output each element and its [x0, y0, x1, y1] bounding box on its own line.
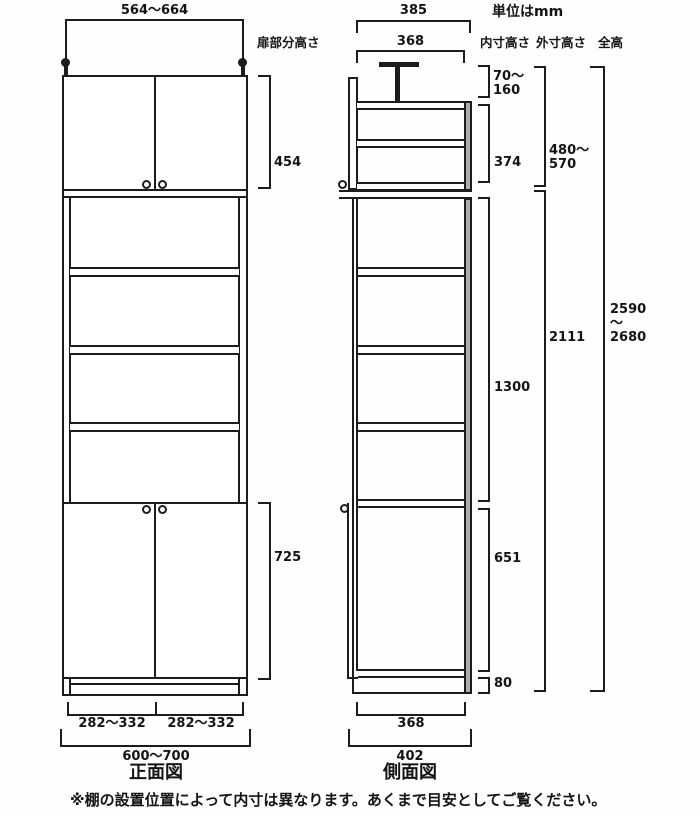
upper-unit-bottom-panel [62, 196, 248, 198]
dimension-tick [242, 702, 244, 716]
kick-plate-line [71, 683, 238, 685]
bracket-spine [269, 75, 271, 189]
dim-label-total: 2590 ～ 2680 [610, 303, 646, 345]
lower-door-divider [154, 504, 156, 678]
dim-label-inner-depth-top: 368 [357, 35, 464, 49]
door-section-label: 扉部分高さ [257, 36, 320, 50]
dim-label-inner-5: 80 [494, 677, 512, 691]
column-header-inner-height: 内寸高さ [480, 36, 530, 50]
upper-back-panel [464, 101, 472, 191]
dimension-line [60, 745, 251, 747]
dimension-tick [469, 20, 471, 33]
bracket-tick [534, 185, 546, 187]
dim-label-outer-1: 480～ 570 [549, 144, 589, 172]
shelf-line [70, 345, 239, 355]
lower-door-front-line [347, 503, 349, 679]
bracket-tick [478, 181, 490, 183]
shelf-line [70, 422, 239, 432]
upper-top-panel [357, 101, 465, 110]
dim-label-outer-2: 2111 [549, 331, 585, 345]
dim-label-inner-4: 651 [494, 552, 521, 566]
upper-door-knob-right [158, 180, 167, 189]
shelf-line [358, 422, 464, 432]
dimension-tick [249, 729, 251, 747]
lower-door-knob-right [158, 505, 167, 514]
bracket-spine [488, 65, 490, 98]
shelf-line [358, 267, 464, 277]
dim-label-inner-depth-bottom: 368 [357, 717, 465, 731]
upper-front-frame [348, 77, 358, 190]
dimension-tick [470, 729, 472, 747]
tension-jack-stem-icon [395, 67, 400, 103]
dimension-line [66, 19, 244, 21]
bracket-spine [488, 104, 490, 183]
dim-label-inner-1: 70～ 160 [493, 70, 524, 98]
dimension-tick [463, 50, 465, 63]
dimension-tick [356, 702, 358, 716]
bracket-spine [544, 190, 546, 692]
lower-door-knob-side [340, 504, 349, 513]
column-header-outer-height: 外寸高さ [536, 36, 586, 50]
dimension-tick [60, 729, 62, 747]
dim-label-inner-3: 1300 [494, 381, 530, 395]
upper-door-knob-left [142, 180, 151, 189]
base-foot-line [69, 679, 71, 695]
bracket-spine [488, 508, 490, 672]
lower-door-bottom-line [347, 677, 358, 679]
dimension-tick [464, 702, 466, 716]
dim-label-left-door-width: 282～332 [68, 717, 156, 731]
bracket-tick [478, 670, 490, 672]
side-view-title: 側面図 [360, 763, 460, 783]
shelf-line [358, 499, 464, 508]
bracket-tick [478, 96, 490, 98]
main-top-panel [339, 190, 472, 199]
lower-door-bottom-line [62, 677, 248, 679]
dim-label-lower-door-height: 725 [274, 551, 301, 565]
bracket-spine [269, 502, 271, 680]
dimension-tick [356, 50, 358, 63]
bracket-spine [544, 66, 546, 187]
bracket-tick [478, 692, 490, 694]
dim-label-outer-depth-top: 385 [357, 4, 470, 18]
upper-door-bottom-line [62, 189, 248, 191]
bracket-tick [478, 500, 490, 502]
dim-label-upper-door-height: 454 [274, 156, 301, 170]
shelf-line [358, 345, 464, 355]
upper-door-knob-side [338, 180, 347, 189]
front-view-title: 正面図 [106, 763, 206, 783]
dimension-line [356, 20, 471, 22]
main-back-panel [464, 198, 472, 694]
upper-door-divider [154, 75, 156, 189]
base-foot-line [238, 679, 240, 695]
bracket-tick [258, 187, 271, 189]
dim-label-inner-2: 374 [494, 156, 521, 170]
bottom-panel [358, 669, 464, 678]
dim-label-right-door-width: 282～332 [157, 717, 245, 731]
dimension-line [348, 745, 472, 747]
dimension-tick [242, 19, 244, 59]
dim-label-top-width: 564～664 [66, 4, 243, 18]
dimension-tick [67, 702, 69, 716]
footnote: ※棚の設置位置によって内寸は異なります。あくまで目安としてご覧ください。 [70, 791, 630, 809]
base-bottom-line [352, 692, 472, 694]
dimension-diagram: 564～664 4 [0, 0, 700, 816]
dimension-tick [65, 19, 67, 59]
bracket-tick [534, 690, 546, 692]
dimension-line [356, 50, 465, 52]
main-front-line [352, 198, 354, 694]
column-header-total-height: 全高 [598, 36, 623, 50]
shelf-line [357, 139, 464, 148]
shelf-line [70, 267, 239, 277]
bracket-spine [488, 197, 490, 502]
units-note: 単位はmm [492, 5, 563, 19]
lower-door-knob-left [142, 505, 151, 514]
dimension-tick [155, 702, 157, 716]
dimension-tick [356, 20, 358, 33]
bracket-tick [258, 678, 271, 680]
bracket-tick [590, 690, 605, 692]
bracket-spine [603, 66, 605, 692]
dimension-tick [348, 729, 350, 747]
